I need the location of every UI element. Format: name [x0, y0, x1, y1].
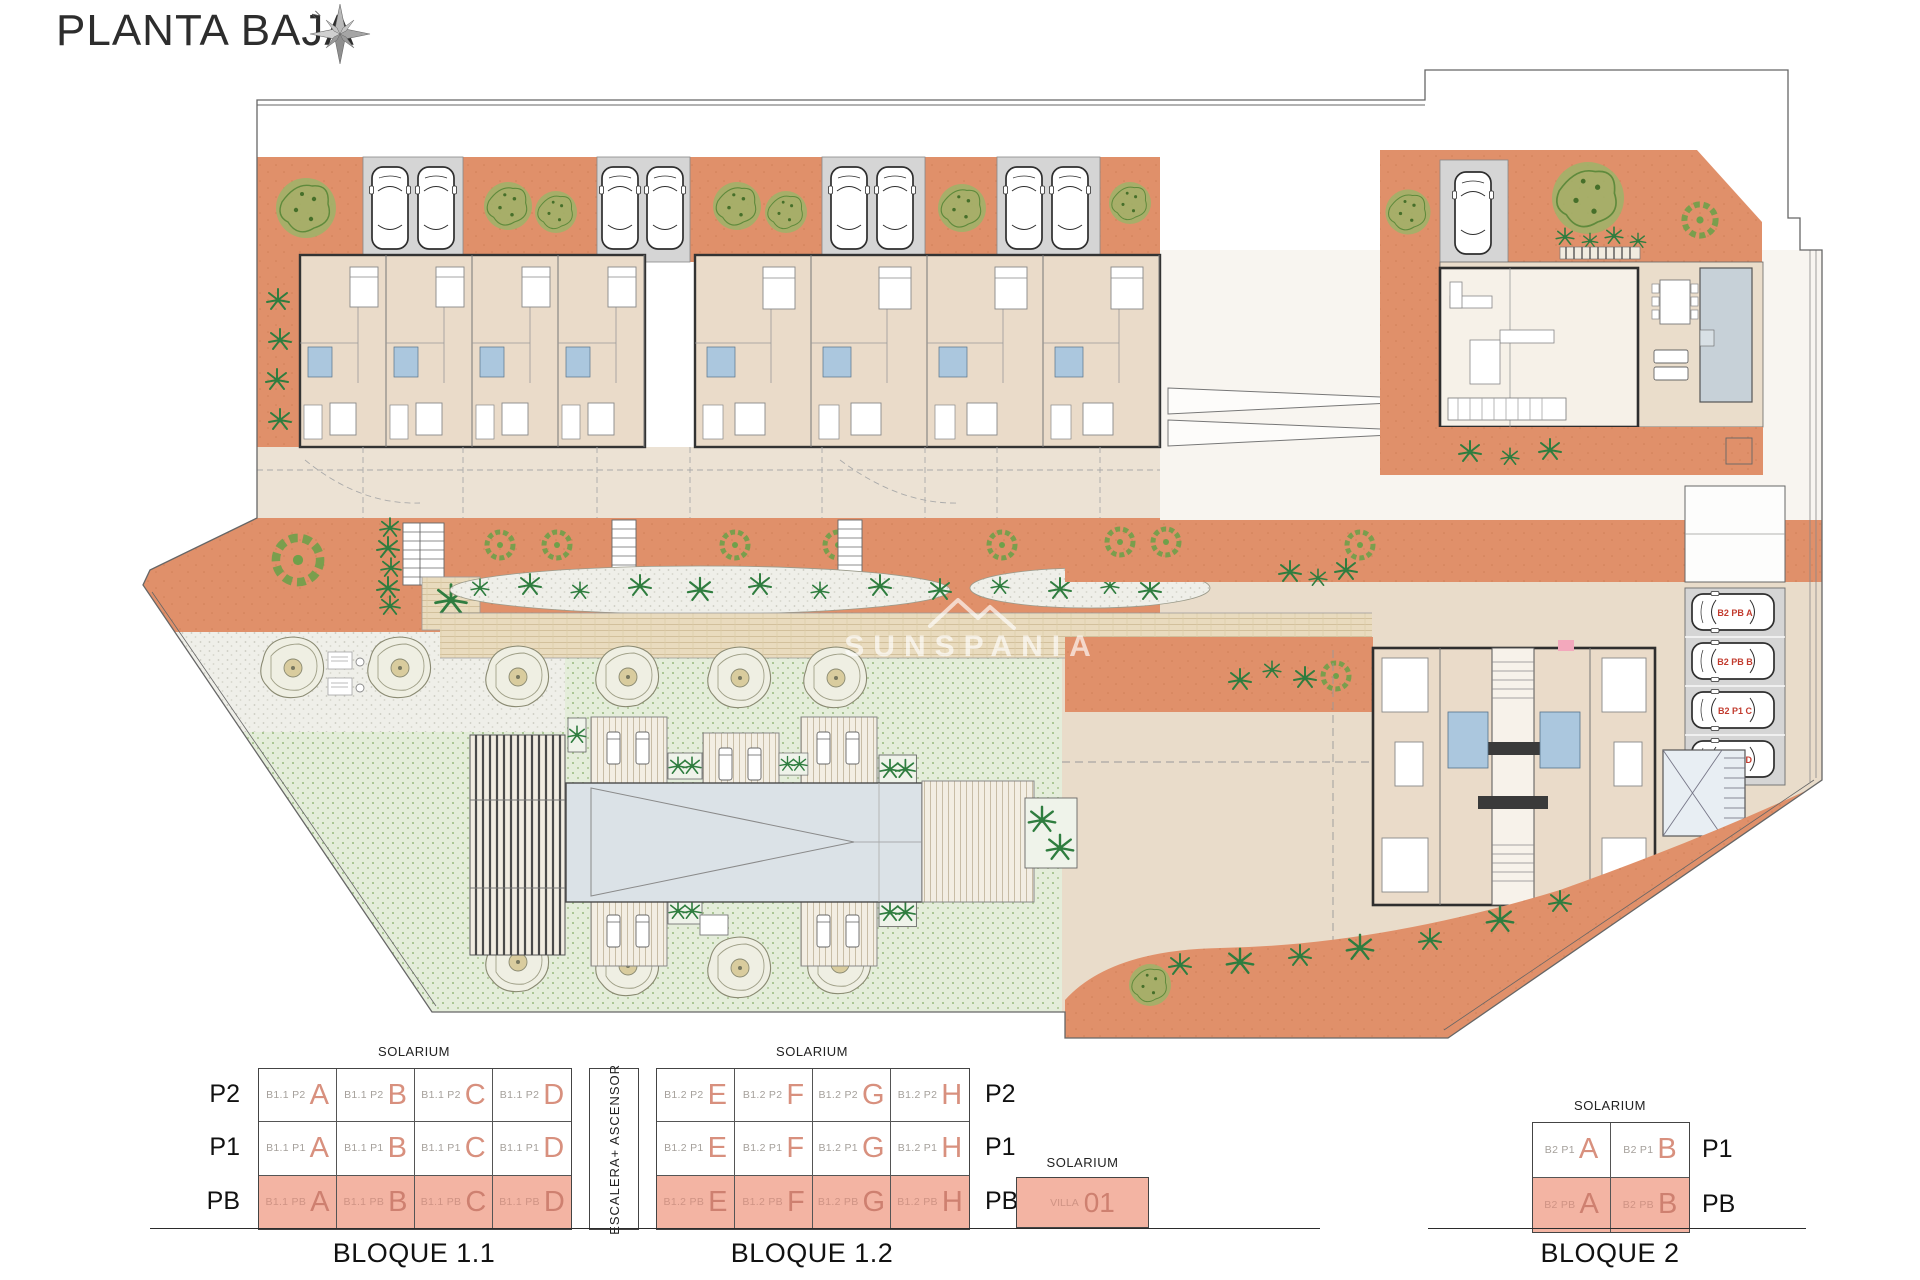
floor-label: P2	[160, 1068, 240, 1121]
unit-cell: B1.1 P1A	[259, 1122, 337, 1175]
unit-cell-ground: B1.2 PBF	[735, 1176, 813, 1229]
unit-cell: B1.1 P1C	[415, 1122, 493, 1175]
unit-cell: B1.1 P1D	[493, 1122, 571, 1175]
solarium-label: SOLARIUM	[1532, 1098, 1688, 1113]
villa-dining	[1652, 280, 1698, 324]
unit-cell-ground: B1.2 PBE	[657, 1176, 735, 1229]
deck-planter	[1025, 798, 1077, 868]
unit-cell: B1.1 P2B	[337, 1069, 415, 1122]
floor-label: PB	[1702, 1177, 1762, 1232]
bloque-1-2-caption: BLOQUE 1.2	[656, 1238, 968, 1269]
unit-cell-ground: B1.2 PBG	[813, 1176, 891, 1229]
bloque-1-2-key: B1.2 P2E B1.2 P2F B1.2 P2G B1.2 P2H B1.2…	[656, 1068, 970, 1230]
floor-label: P1	[1702, 1122, 1762, 1177]
unit-cell: B1.2 P2H	[891, 1069, 969, 1122]
bloque-1-1-building	[300, 255, 645, 447]
unit-cell-ground: B1.1 PBB	[337, 1176, 415, 1229]
watermark-text: SUNSPANIA	[844, 630, 1099, 663]
solarium-label: SOLARIUM	[656, 1044, 968, 1059]
ground-line	[1428, 1228, 1806, 1229]
unit-cell: B1.2 P2G	[813, 1069, 891, 1122]
wood-deck	[922, 781, 1034, 902]
stair-elevator-key: ESCALERA+ ASCENSOR	[589, 1068, 639, 1230]
unit-cell: B1.2 P2F	[735, 1069, 813, 1122]
unit-cell: B2 P1A	[1533, 1123, 1611, 1178]
unit-cell: B1.2 P1E	[657, 1122, 735, 1175]
unit-cell: B1.1 P2D	[493, 1069, 571, 1122]
parking-label: B2 PB B	[1717, 657, 1753, 667]
unit-cell: B1.1 P1B	[337, 1122, 415, 1175]
ground-line	[150, 1228, 1320, 1229]
villa-pool	[1700, 268, 1752, 402]
bloque-1-1-key: B1.1 P2A B1.1 P2B B1.1 P2C B1.1 P2D B1.1…	[258, 1068, 572, 1230]
unit-cell-ground: B1.1 PBD	[493, 1176, 571, 1229]
unit-cell-ground: B1.2 PBH	[891, 1176, 969, 1229]
solarium-label: SOLARIUM	[1016, 1155, 1149, 1170]
bloque-1-1-caption: BLOQUE 1.1	[258, 1238, 570, 1269]
solarium-label: SOLARIUM	[258, 1044, 570, 1059]
floor-label: P2	[985, 1068, 1045, 1121]
unit-cell-ground: B1.1 PBC	[415, 1176, 493, 1229]
floor-labels-left: P2 P1 PB	[160, 1068, 240, 1228]
unit-cell-ground: B2 PBB	[1611, 1178, 1689, 1233]
unit-marker	[1558, 640, 1574, 651]
unit-cell: B1.1 P2A	[259, 1069, 337, 1122]
pergola	[470, 735, 565, 955]
unit-cell: B1.2 P1H	[891, 1122, 969, 1175]
floor-labels-bloque2: P1 PB	[1702, 1122, 1762, 1231]
floor-plan-page: PLANTA BAJA	[0, 0, 1920, 1280]
unit-cell: B2 P1B	[1611, 1123, 1689, 1178]
villa-zone	[1380, 150, 1763, 475]
villa-building	[1440, 268, 1638, 427]
bloque-2-key: B2 P1A B2 P1B B2 PBA B2 PBB	[1532, 1122, 1690, 1233]
floor-label: P1	[160, 1121, 240, 1174]
bloque-1-2-building	[695, 255, 1160, 447]
unit-cell-ground: B1.1 PBA	[259, 1176, 337, 1229]
parking-label: B2 PB A	[1717, 608, 1753, 618]
unit-cell: B1.2 P1F	[735, 1122, 813, 1175]
unit-cell: B1.2 P2E	[657, 1069, 735, 1122]
parking-label: B2 P1 C	[1718, 706, 1753, 716]
villa-key: VILLA 01	[1016, 1177, 1149, 1228]
compass-north-label: N	[310, 9, 323, 22]
unit-cell: B1.2 P1G	[813, 1122, 891, 1175]
bloque-2-caption: BLOQUE 2	[1510, 1238, 1710, 1269]
communal-pool	[566, 783, 922, 902]
bloque-2-building	[1373, 648, 1655, 905]
unit-cell: B1.1 P2C	[415, 1069, 493, 1122]
compass-icon: N	[310, 4, 370, 64]
unit-cell-ground: B2 PBA	[1533, 1178, 1611, 1233]
floor-label: PB	[160, 1175, 240, 1228]
